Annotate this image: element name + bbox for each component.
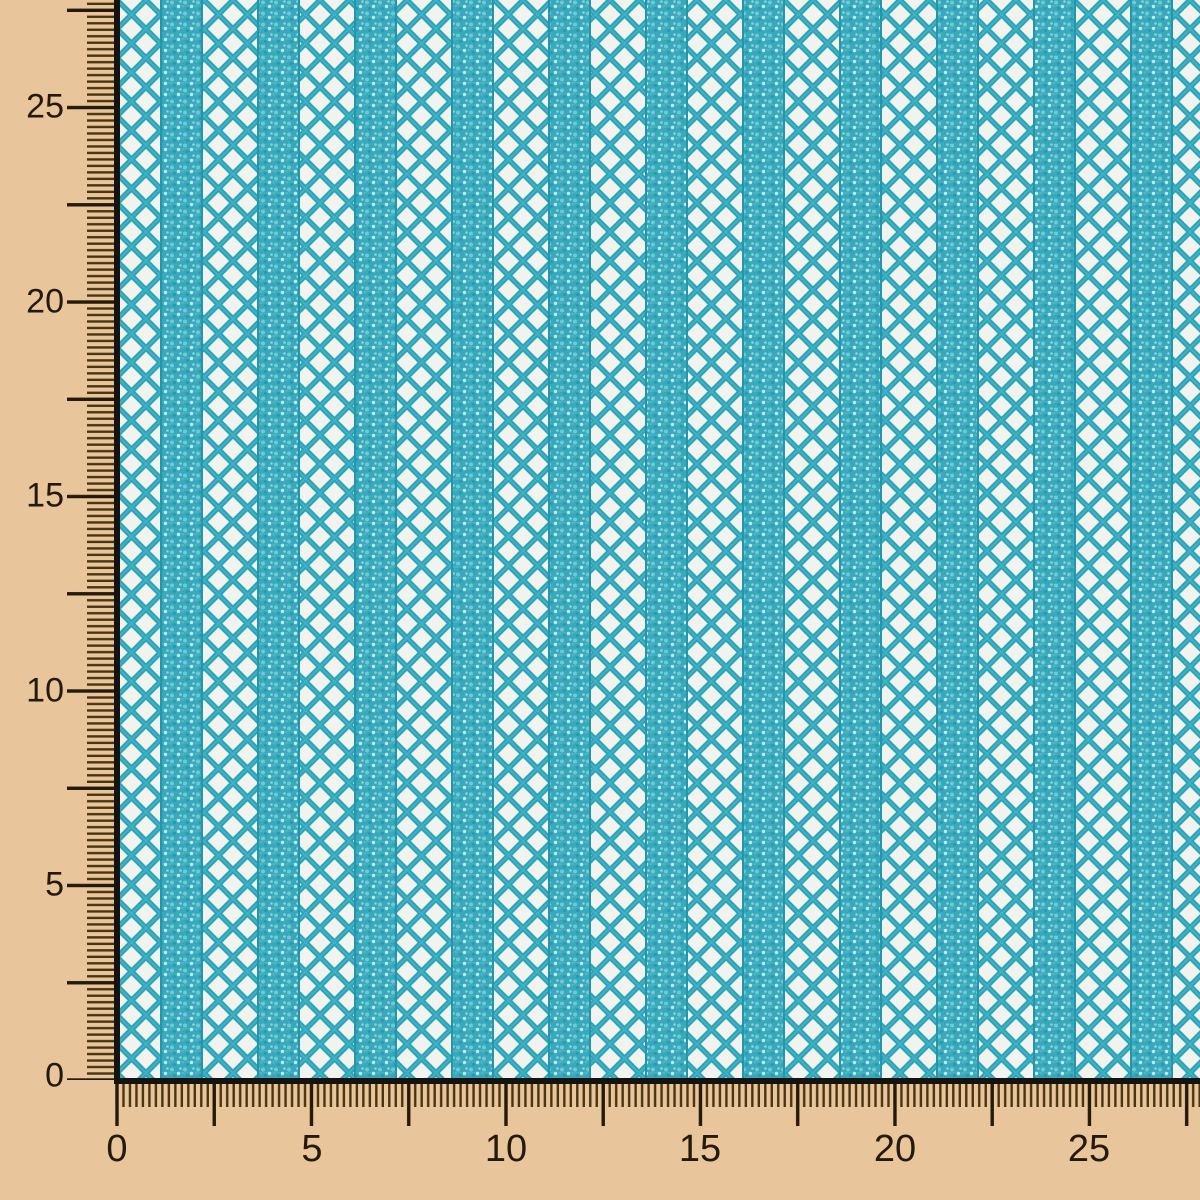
bottom-ruler-label-0: 0 <box>106 1128 127 1171</box>
bottom-ruler-label-10: 10 <box>485 1128 527 1171</box>
left-ruler-label-10: 10 <box>26 672 64 711</box>
left-ruler-label-5: 5 <box>45 866 64 905</box>
bottom-ruler-label-15: 15 <box>679 1128 721 1171</box>
bottom-ruler-label-5: 5 <box>301 1128 322 1171</box>
left-ruler-label-25: 25 <box>26 88 64 127</box>
left-ruler-label-15: 15 <box>26 477 64 516</box>
bottom-ruler-major-ticks <box>115 1084 1200 1126</box>
bottom-ruler-label-25: 25 <box>1068 1128 1110 1171</box>
bottom-ruler-label-20: 20 <box>874 1128 916 1171</box>
left-ruler-major-ticks <box>67 0 114 1080</box>
ruler-ticks <box>0 0 1200 1200</box>
left-ruler-label-20: 20 <box>26 283 64 322</box>
fabric-swatch-photo: 0 5 10 15 20 25 0 5 10 15 20 25 <box>0 0 1200 1200</box>
left-ruler-label-0: 0 <box>45 1057 64 1096</box>
